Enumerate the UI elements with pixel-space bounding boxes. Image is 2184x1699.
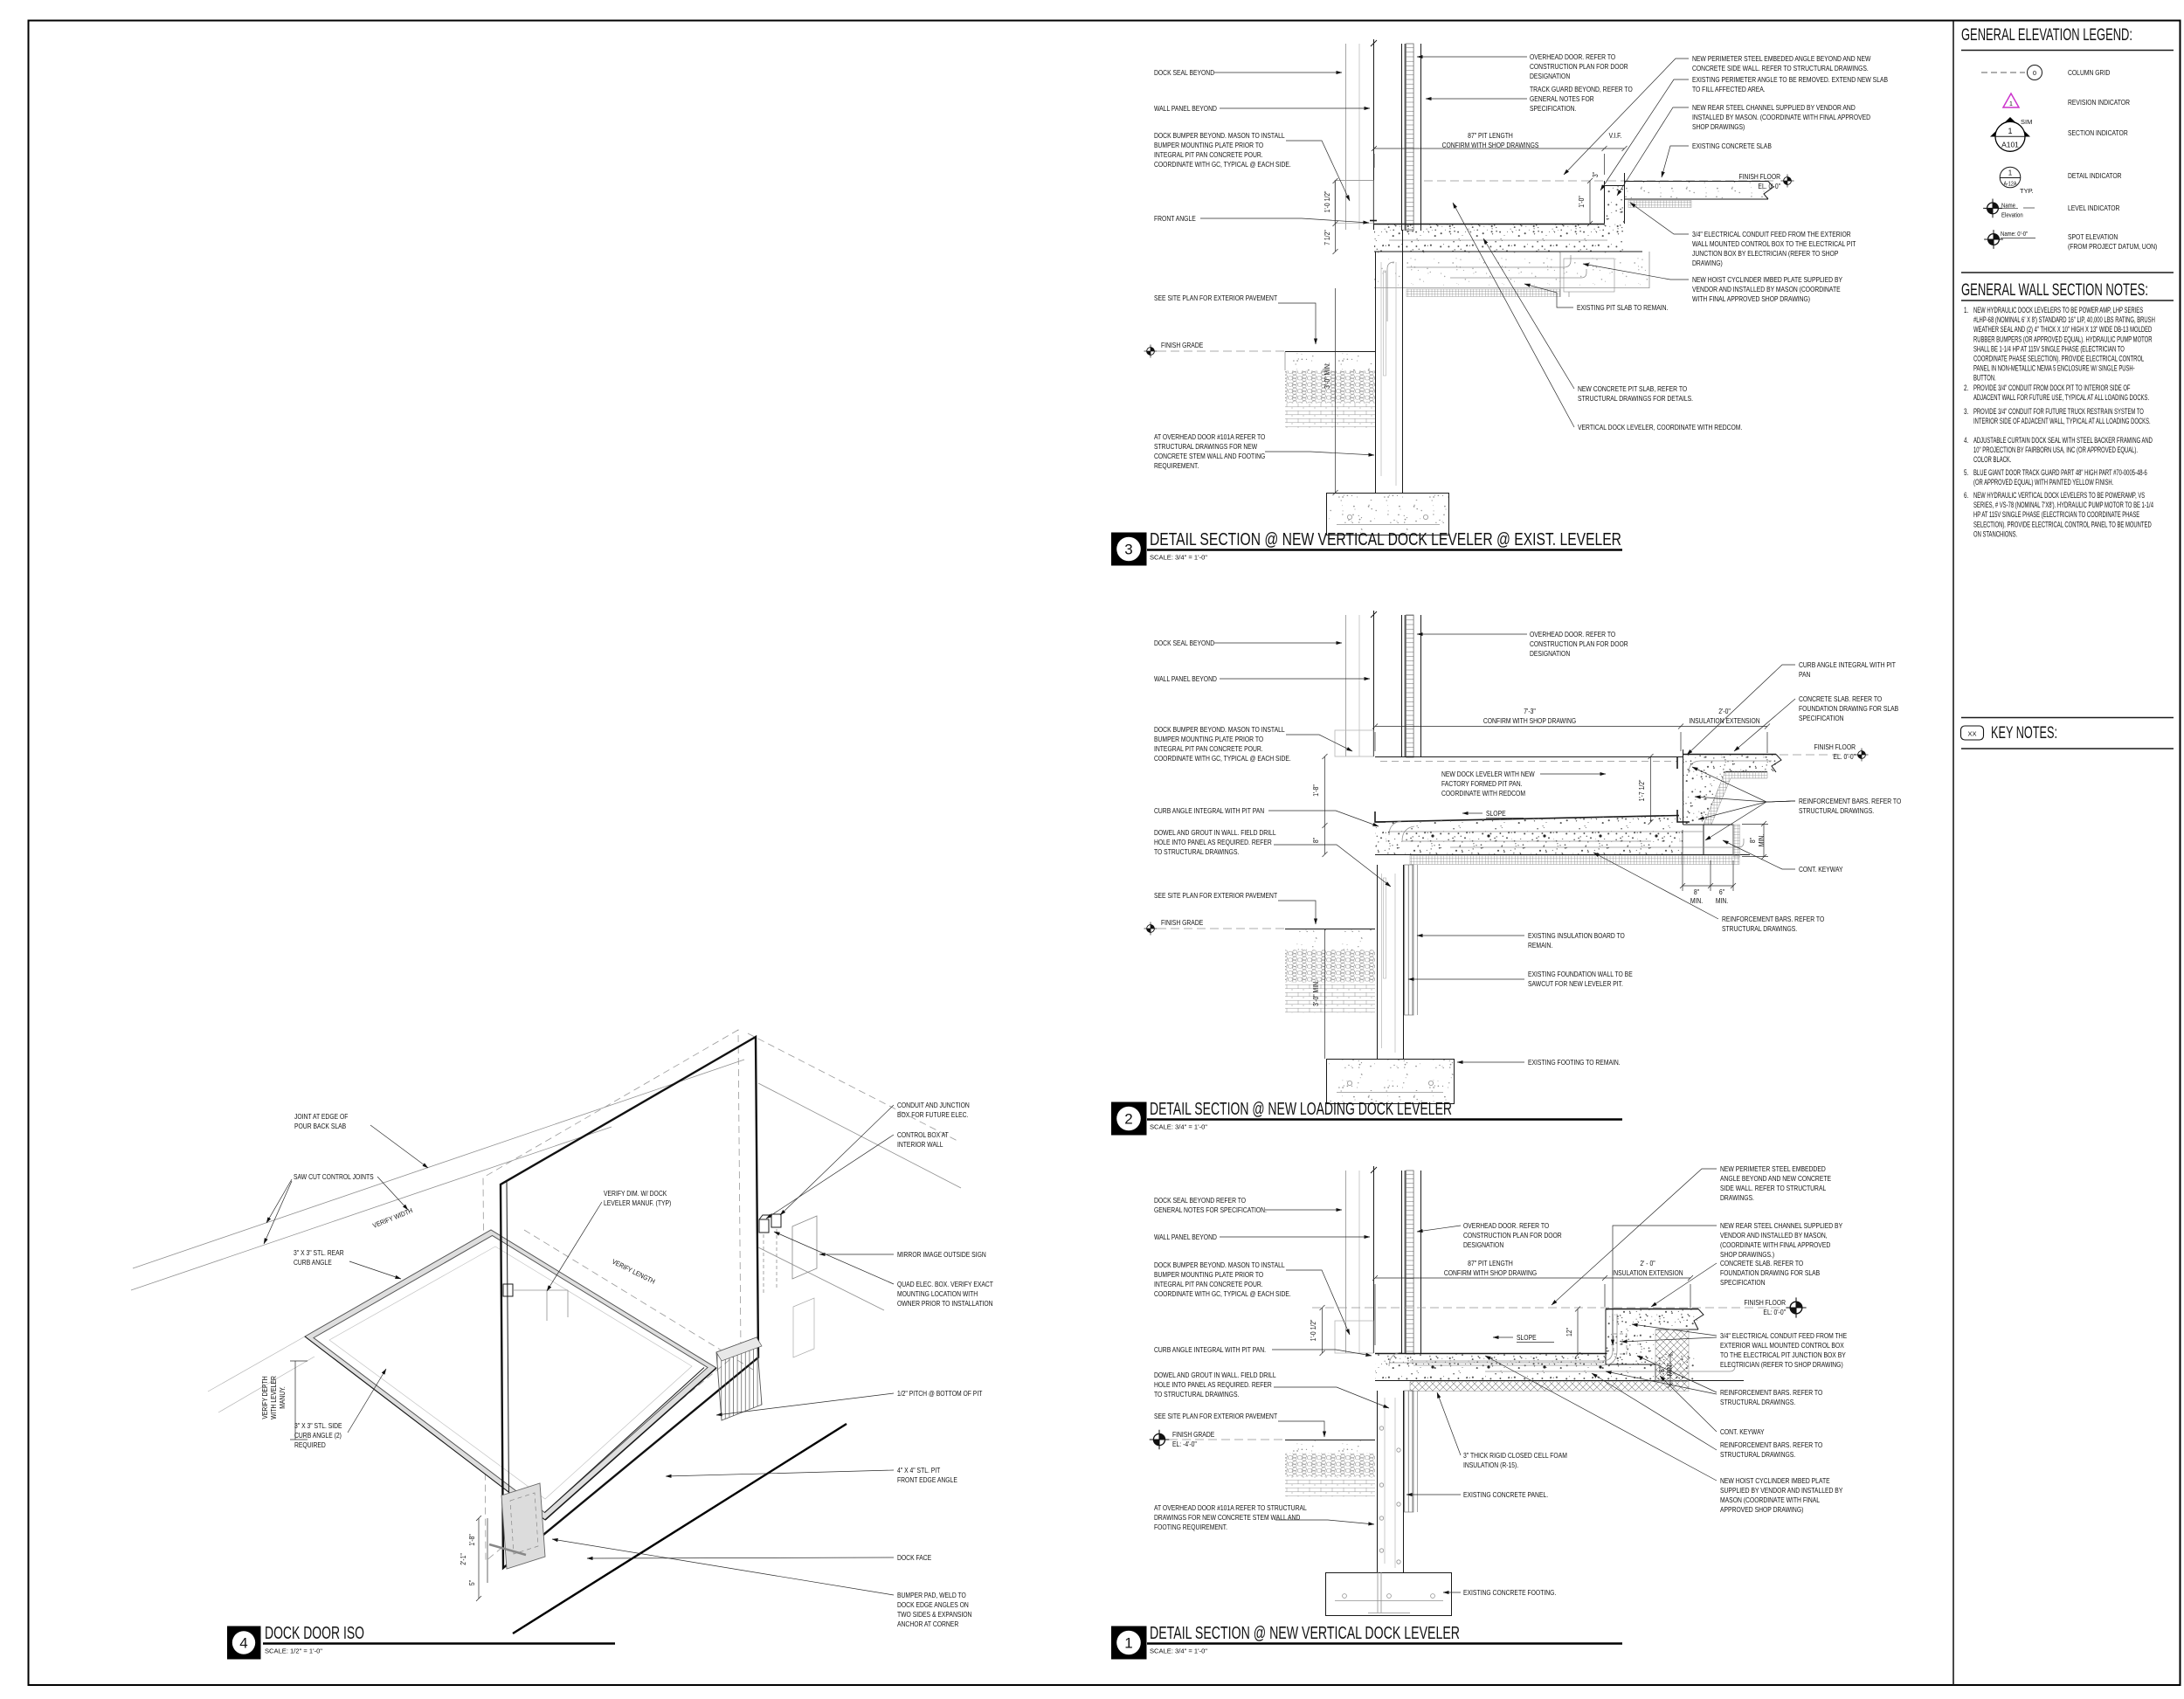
svg-text:SCALE: 1/2" = 1'-0": SCALE: 1/2" = 1'-0" [265,1647,322,1655]
svg-text:CURB ANGLE INTEGRAL WITH PIT P: CURB ANGLE INTEGRAL WITH PIT PAN. [1154,1345,1266,1354]
svg-text:CURB ANGLE INTEGRAL WITH PIT P: CURB ANGLE INTEGRAL WITH PIT PAN [1154,806,1264,815]
svg-text:SEE SITE PLAN FOR EXTERIOR PAV: SEE SITE PLAN FOR EXTERIOR PAVEMENT [1154,294,1278,302]
svg-text:DOCK SEAL BEYOND: DOCK SEAL BEYOND [1154,68,1214,77]
svg-text:EXISTING PIT SLAB TO REMAIN.: EXISTING PIT SLAB TO REMAIN. [1577,303,1668,312]
svg-text:DOCK FACE: DOCK FACE [897,1553,931,1562]
svg-text:VERIFY DIM. W/ DOCKLEVELER MAN: VERIFY DIM. W/ DOCKLEVELER MANUF. (TYP) [604,1189,671,1207]
svg-text:1'-0 1/2": 1'-0 1/2" [1323,190,1331,212]
svg-text:REVISION INDICATOR: REVISION INDICATOR [2068,98,2130,107]
svg-text:SEE SITE PLAN FOR EXTERIOR PAV: SEE SITE PLAN FOR EXTERIOR PAVEMENT [1154,891,1278,900]
svg-text:SCALE: 3/4" = 1'-0": SCALE: 3/4" = 1'-0" [1150,554,1207,562]
svg-text:4: 4 [239,1635,247,1652]
svg-text:CONT. KEYWAY: CONT. KEYWAY [1799,865,1843,874]
svg-text:XX: XX [1967,730,1976,738]
svg-text:1: 1 [2008,127,2012,135]
svg-text:CONT. KEYWAY: CONT. KEYWAY [1720,1427,1765,1436]
svg-text:MANUY.: MANUY. [278,1386,287,1409]
svg-text:PROVIDE 3/4" CONDUIT FOR FUTUR: PROVIDE 3/4" CONDUIT FOR FUTURE TRUCK RE… [1973,407,2151,426]
svg-text:6.: 6. [1964,491,1968,500]
svg-text:WALL PANEL BEYOND: WALL PANEL BEYOND [1154,674,1217,683]
svg-text:EXISTING FOUNDATION WALL TO BE: EXISTING FOUNDATION WALL TO BESAWCUT FOR… [1528,970,1633,988]
svg-text:Name: 0'-0": Name: 0'-0" [2001,231,2028,238]
svg-text:PROVIDE 3/4" CONDUIT FROM DOCK: PROVIDE 3/4" CONDUIT FROM DOCK PIT TO IN… [1973,383,2149,403]
svg-text:1: 1 [1124,1635,1132,1652]
svg-text:FINISH FLOOR: FINISH FLOOR [1745,1298,1786,1307]
svg-text:WALL PANEL BEYOND: WALL PANEL BEYOND [1154,104,1217,113]
svg-text:FINISH FLOOR: FINISH FLOOR [1814,742,1856,751]
svg-text:2'-1": 2'-1" [459,1553,467,1565]
svg-text:FINISH FLOOR: FINISH FLOOR [1739,172,1780,181]
svg-text:1'-0 1/2": 1'-0 1/2" [1309,1319,1317,1341]
svg-text:DETAIL SECTION @ NEW VERTICAL: DETAIL SECTION @ NEW VERTICAL DOCK LEVEL… [1150,1624,1460,1643]
svg-text:8": 8" [1311,838,1320,844]
svg-text:COLUMN GRID: COLUMN GRID [2068,68,2110,77]
svg-text:EXISTING CONCRETE SLAB: EXISTING CONCRETE SLAB [1692,142,1772,150]
svg-text:1: 1 [2008,169,2013,177]
svg-text:8": 8" [1748,838,1757,844]
svg-text:GENERAL ELEVATION LEGEND:: GENERAL ELEVATION LEGEND: [1961,25,2132,45]
svg-text:SLOPE: SLOPE [1486,809,1506,818]
svg-text:0: 0 [2033,69,2036,77]
svg-text:Elevation: Elevation [2001,212,2023,219]
svg-text:DETAIL SECTION @ NEW VERTICAL: DETAIL SECTION @ NEW VERTICAL DOCK LEVEL… [1150,530,1621,549]
svg-text:TYP.: TYP. [2020,187,2034,195]
svg-text:FINISH GRADE: FINISH GRADE [1172,1430,1214,1439]
svg-text:3.: 3. [1964,407,1968,416]
svg-text:Name: Name [2001,203,2015,210]
svg-text:2: 2 [1124,1111,1132,1128]
svg-text:3": 3" [1591,172,1600,178]
svg-text:4.: 4. [1964,436,1968,445]
svg-text:EL: 0'-0": EL: 0'-0" [1763,1308,1786,1316]
svg-text:DETAIL SECTION @ NEW LOADING D: DETAIL SECTION @ NEW LOADING DOCK LEVELE… [1150,1100,1452,1119]
svg-text:VERTICAL DOCK LEVELER, COORDIN: VERTICAL DOCK LEVELER, COORDINATE WITH R… [1578,423,1742,432]
svg-text:KEY NOTES:: KEY NOTES: [1991,723,2057,742]
svg-text:2.: 2. [1964,383,1968,392]
svg-text:EXISTING FOOTING TO REMAIN.: EXISTING FOOTING TO REMAIN. [1528,1058,1621,1067]
svg-text:5": 5" [467,1580,476,1586]
svg-text:1'-0": 1'-0" [1577,196,1586,208]
svg-text:EXISTING CONCRETE PANEL.: EXISTING CONCRETE PANEL. [1463,1490,1548,1499]
svg-text:1'-8": 1'-8" [467,1534,476,1546]
svg-text:SCALE: 3/4" = 1'-0": SCALE: 3/4" = 1'-0" [1150,1647,1207,1655]
svg-text:FINISH GRADE: FINISH GRADE [1161,918,1203,927]
svg-text:SIM: SIM [2021,118,2032,126]
svg-text:SAW CUT CONTROL JOINTS: SAW CUT CONTROL JOINTS [294,1172,374,1181]
svg-text:EL. 0'-0": EL. 0'-0" [1833,752,1856,761]
svg-text:SCALE: 3/4" = 1'-0": SCALE: 3/4" = 1'-0" [1150,1123,1207,1131]
svg-text:DOCK DOOR ISO: DOCK DOOR ISO [265,1624,364,1643]
svg-text:3'-0" MIN.: 3'-0" MIN. [1311,980,1320,1006]
svg-text:3/4" ELECTRICAL CONDUIT FEED F: 3/4" ELECTRICAL CONDUIT FEED FROM THEEXT… [1720,1331,1847,1369]
svg-text:MIN.: MIN. [1757,834,1766,846]
svg-text:12": 12" [1565,1328,1573,1336]
svg-text:1'-8": 1'-8" [1311,784,1320,797]
svg-text:VERIFY DEPTH: VERIFY DEPTH [260,1376,269,1419]
svg-text:7 1/2": 7 1/2" [1323,230,1331,245]
svg-text:MIRROR IMAGE OUTSIDE SIGN: MIRROR IMAGE OUTSIDE SIGN [897,1250,986,1259]
svg-text:V.I.F.: V.I.F. [1609,131,1622,140]
svg-text:CONDUIT AND JUNCTIONBOX FOR FU: CONDUIT AND JUNCTIONBOX FOR FUTURE ELEC. [897,1101,970,1119]
svg-text:GENERAL WALL SECTION NOTES:: GENERAL WALL SECTION NOTES: [1961,280,2148,300]
svg-text:3: 3 [1124,542,1132,558]
svg-text:NEW DOCK LEVELER WITH NEWFACTO: NEW DOCK LEVELER WITH NEWFACTORY FORMED … [1441,770,1535,798]
svg-text:EL: -4'-0": EL: -4'-0" [1172,1440,1197,1448]
svg-text:NEW PERIMETER STEEL EMBEDED AN: NEW PERIMETER STEEL EMBEDED ANGLE BEYOND… [1692,54,1870,73]
svg-text:WALL PANEL BEYOND: WALL PANEL BEYOND [1154,1233,1217,1241]
svg-text:DETAIL INDICATOR: DETAIL INDICATOR [2068,171,2122,180]
svg-text:3'-0" MIN.: 3'-0" MIN. [1323,363,1331,389]
svg-text:A101: A101 [2001,141,2019,149]
svg-text:WITH LEVELER: WITH LEVELER [269,1376,278,1419]
svg-text:FINISH GRADE: FINISH GRADE [1161,341,1203,349]
svg-text:EXISTING CONCRETE FOOTING.: EXISTING CONCRETE FOOTING. [1463,1588,1556,1597]
svg-text:NEW CONCRETE PIT SLAB, REFER T: NEW CONCRETE PIT SLAB, REFER TOSTRUCTURA… [1578,384,1693,403]
svg-text:LEVEL INDICATOR: LEVEL INDICATOR [2068,204,2119,212]
svg-text:CONTROL BOX ATINTERIOR WALL: CONTROL BOX ATINTERIOR WALL [897,1130,949,1149]
svg-text:FRONT ANGLE: FRONT ANGLE [1154,214,1196,223]
svg-text:1.: 1. [1964,306,1968,314]
svg-text:A-12A: A-12A [2004,181,2018,188]
svg-text:1'-7 1/2": 1'-7 1/2" [1637,779,1646,801]
svg-text:SEE SITE PLAN FOR EXTERIOR PAV: SEE SITE PLAN FOR EXTERIOR PAVEMENT [1154,1412,1278,1420]
svg-text:1: 1 [2009,101,2013,107]
svg-text:JOINT AT EDGE OFPOUR BACK SLAB: JOINT AT EDGE OFPOUR BACK SLAB [294,1112,349,1130]
svg-text:1/2" PITCH @ BOTTOM OF PIT: 1/2" PITCH @ BOTTOM OF PIT [897,1389,983,1398]
svg-text:5.: 5. [1964,468,1968,477]
svg-text:SLOPE: SLOPE [1517,1333,1537,1342]
svg-text:DOCK SEAL BEYOND: DOCK SEAL BEYOND [1154,639,1214,647]
svg-text:SECTION INDICATOR: SECTION INDICATOR [2068,128,2128,137]
